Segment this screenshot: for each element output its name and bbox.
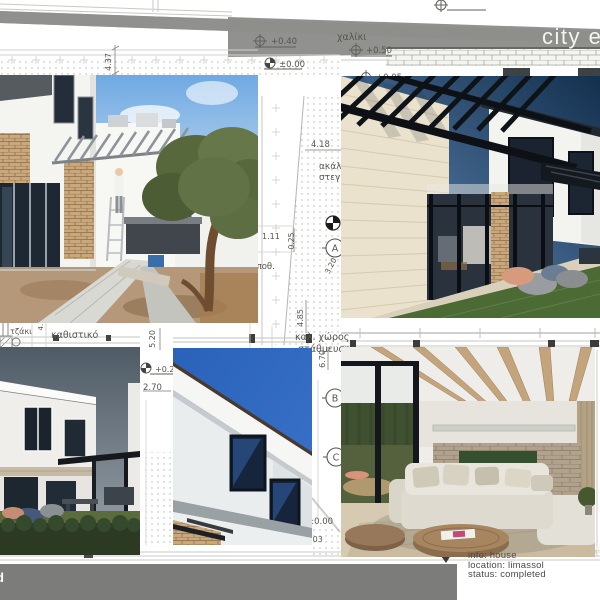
photo-dusk-render — [0, 347, 140, 555]
section-marker-b: B — [332, 394, 339, 405]
photo-courtyard-construction — [0, 75, 258, 323]
project-info-status: status: completed — [468, 570, 546, 580]
photo-facade-corner — [173, 348, 312, 545]
project-info: info: house location: limassol status: c… — [468, 551, 546, 580]
photo-living-room-render — [341, 347, 595, 557]
photo-exterior-render — [341, 76, 600, 318]
banner-title: city e — [542, 24, 600, 50]
section-marker-a: A — [332, 244, 339, 255]
drawing-label: +0.40 — [271, 37, 297, 47]
drawing-label: ±0.00 — [279, 60, 305, 70]
drawing-label: 4.85 — [296, 309, 305, 327]
drawing-label: καθιστικό — [51, 330, 98, 341]
portfolio-sheet: A B C 4.37 +0.40 χαλίκι +0.50 ±0.00 +0.0… — [0, 0, 600, 600]
section-marker-c: C — [333, 453, 340, 464]
drawing-label: καλ. χώρος — [295, 332, 349, 343]
drawing-label: 5.20 — [148, 330, 157, 348]
drawing-label: τζάκι — [10, 327, 32, 336]
drawing-label: 6.70 — [318, 350, 327, 368]
drawing-label: 4.37 — [104, 53, 113, 71]
drawing-label: 2.70 — [143, 383, 162, 393]
drawing-label: χαλίκι — [337, 32, 366, 43]
drawing-label: 4.18 — [311, 140, 330, 150]
footer-bar-fragment: d — [0, 570, 4, 585]
footer-bar: d — [0, 564, 457, 600]
drawing-label: 0.25 — [287, 232, 296, 249]
drawing-label: 1.11 — [262, 232, 280, 241]
drawing-label: +0.50 — [366, 46, 392, 56]
